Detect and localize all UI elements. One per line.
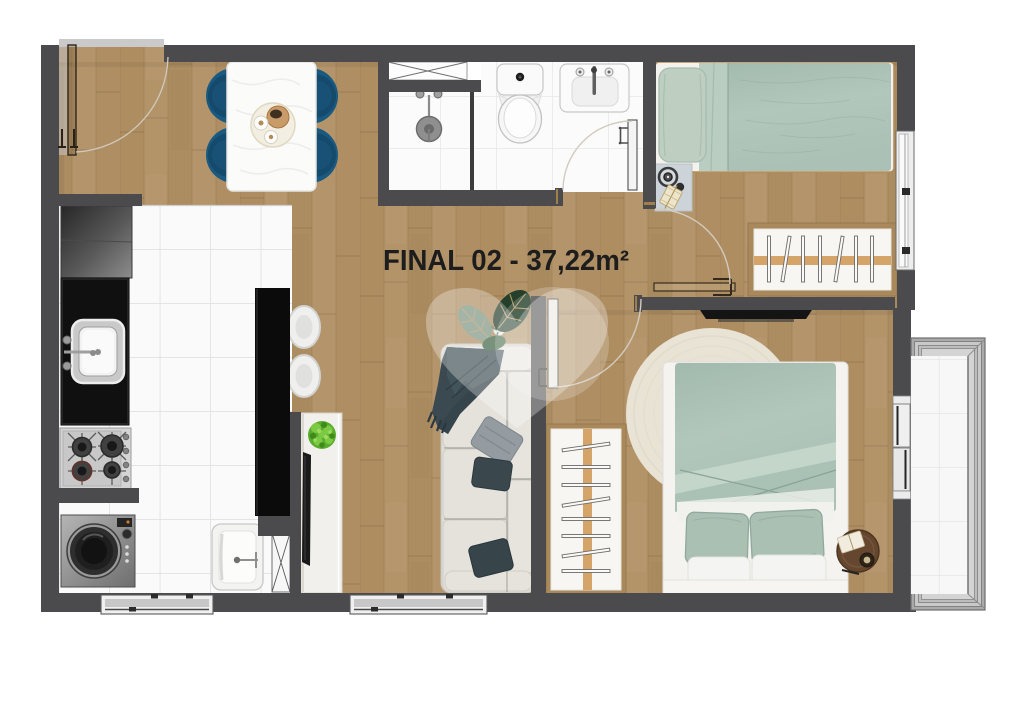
svg-text:FINAL 02 - 37,22m²: FINAL 02 - 37,22m² bbox=[383, 245, 629, 277]
